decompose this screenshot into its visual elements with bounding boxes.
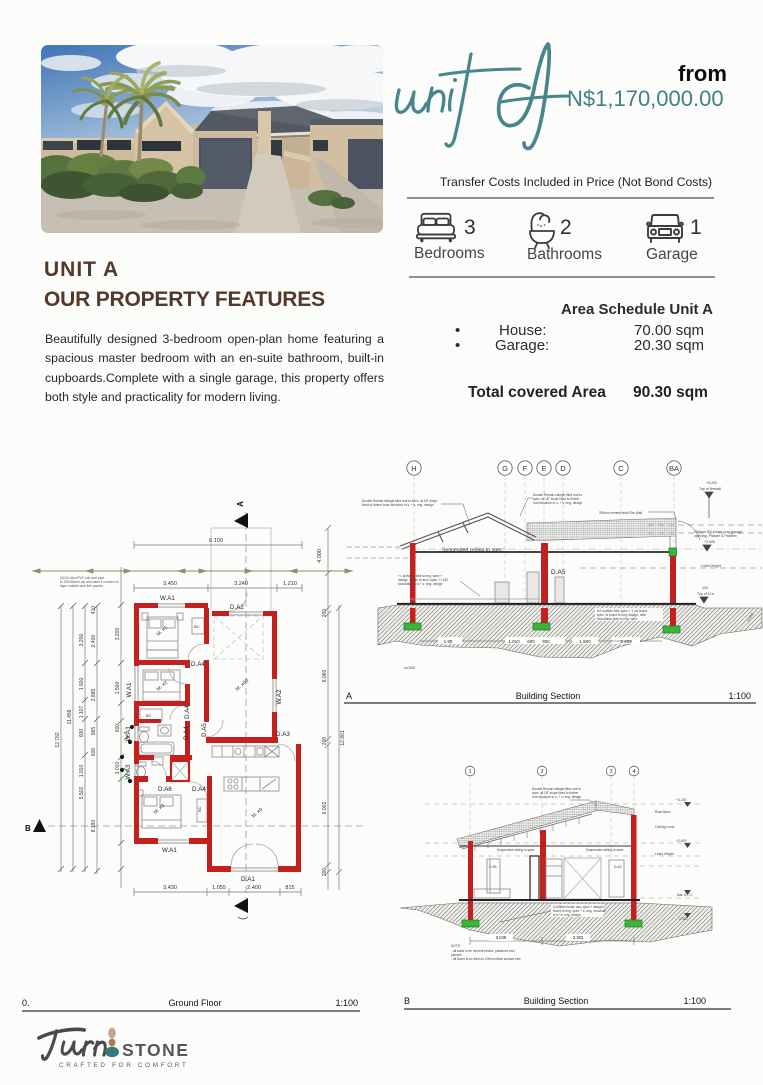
- svg-text:200: 200: [322, 609, 328, 618]
- svg-text:Suspended ceiling to spec:: Suspended ceiling to spec:: [442, 548, 504, 554]
- svg-text:E: E: [541, 464, 546, 473]
- svg-text:1: 1: [468, 769, 471, 775]
- svg-text:Nat. & f.f.l.: Nat. & f.f.l.: [677, 893, 693, 897]
- svg-text:1.800: 1.800: [579, 639, 591, 644]
- svg-text:D.A1: D.A1: [241, 876, 255, 883]
- svg-text:to s.+s. eng. design: to s.+s. eng. design: [553, 913, 581, 917]
- svg-text:3.200: 3.200: [79, 634, 85, 647]
- svg-text:2: 2: [540, 769, 543, 775]
- svg-text:A: A: [236, 501, 245, 507]
- svg-text:Suspended ceiling to spec:: Suspended ceiling to spec:: [497, 848, 535, 852]
- svg-text:M. ≠0: M. ≠0: [251, 807, 265, 820]
- svg-text:-2.302: -2.302: [678, 917, 688, 921]
- svg-text:M. ≠3: M. ≠3: [153, 803, 167, 816]
- svg-text:600: 600: [91, 748, 97, 757]
- svg-text:D.A3: D.A3: [276, 731, 290, 738]
- svg-text:B: B: [404, 996, 410, 1006]
- svg-text:W.A1: W.A1: [162, 847, 177, 854]
- svg-text:layer outside stub line panels: layer outside stub line panels: [60, 584, 103, 588]
- svg-text:BC: BC: [146, 713, 152, 718]
- svg-text:8.190: 8.190: [91, 820, 97, 833]
- svg-text:M. ≠1: M. ≠1: [156, 625, 170, 638]
- svg-text:B: B: [25, 824, 31, 833]
- svg-text:600: 600: [115, 724, 121, 733]
- svg-text:+2.600: +2.600: [676, 839, 687, 843]
- svg-text:BC: BC: [194, 624, 200, 629]
- svg-text:D.A4: D.A4: [183, 726, 190, 740]
- svg-text:600: 600: [527, 639, 535, 644]
- svg-text:12.782: 12.782: [55, 732, 61, 748]
- svg-text:D.A4: D.A4: [184, 705, 191, 719]
- svg-text:Building Section: Building Section: [524, 996, 589, 1006]
- svg-text:1.055: 1.055: [212, 885, 226, 891]
- svg-text:Building Section: Building Section: [516, 691, 581, 701]
- svg-text:Top of firewall: Top of firewall: [699, 487, 721, 491]
- svg-text:600: 600: [79, 729, 85, 738]
- svg-text:1.010: 1.010: [508, 639, 520, 644]
- svg-text:D.A2: D.A2: [614, 865, 622, 869]
- svg-text:11.459: 11.459: [67, 709, 73, 724]
- svg-text:fixed to timber truss structur: fixed to timber truss structure to s. + …: [362, 503, 434, 507]
- svg-text:12.861: 12.861: [340, 730, 346, 746]
- svg-text:1.010: 1.010: [79, 765, 85, 778]
- svg-text:BC: BC: [197, 806, 202, 812]
- svg-text:D.A2: D.A2: [230, 604, 244, 611]
- svg-text:D.A5: D.A5: [551, 569, 566, 576]
- svg-text:D.A5: D.A5: [201, 723, 208, 737]
- svg-text:roof structure to s. + s. eng.: roof structure to s. + s. eng. design: [533, 501, 582, 505]
- svg-text:6.060: 6.060: [322, 670, 328, 683]
- svg-text:W.A3: W.A3: [125, 764, 132, 779]
- svg-text:2.885: 2.885: [91, 689, 97, 702]
- svg-text:3.200: 3.200: [115, 628, 121, 641]
- svg-text:6.100: 6.100: [209, 538, 223, 544]
- svg-text:3.240: 3.240: [234, 581, 248, 587]
- svg-text:roof structure to s. + s. eng.: roof structure to s. + s. eng. design: [532, 795, 581, 799]
- svg-text:1:100: 1:100: [335, 998, 358, 1008]
- svg-text:4: 4: [632, 769, 635, 775]
- svg-text:2.400: 2.400: [620, 639, 632, 644]
- svg-text:Suspended ceiling to spec:: Suspended ceiling to spec:: [586, 848, 624, 852]
- svg-text:965: 965: [91, 727, 97, 736]
- svg-text:D.A6: D.A6: [158, 786, 172, 793]
- svg-text:H: H: [411, 464, 416, 473]
- svg-text:3: 3: [609, 769, 612, 775]
- svg-text:M. ≠00: M. ≠00: [235, 678, 251, 693]
- svg-text:Top of f.f.s.: Top of f.f.s.: [697, 592, 715, 596]
- svg-text:D.A4: D.A4: [191, 661, 205, 668]
- svg-text:0.: 0.: [22, 998, 30, 1008]
- svg-text:D: D: [560, 464, 566, 473]
- svg-text:3.353: 3.353: [573, 935, 584, 940]
- svg-text:G: G: [502, 464, 508, 473]
- svg-text:200: 200: [322, 737, 328, 746]
- svg-text:opening, Plaster & Painted: opening, Plaster & Painted: [694, 534, 737, 538]
- svg-text:+3.252: +3.252: [676, 798, 687, 802]
- svg-text:815: 815: [285, 885, 294, 891]
- svg-text:200mm cement brick Fire Wall: 200mm cement brick Fire Wall: [599, 511, 642, 515]
- svg-text:W.A1: W.A1: [160, 595, 175, 602]
- svg-text:2.400: 2.400: [91, 635, 97, 648]
- svg-text:- all floors to be tiled on 10: - all floors to be tiled on 100mm thick …: [451, 957, 521, 961]
- svg-text:1:100: 1:100: [683, 996, 706, 1006]
- svg-text:Ceiling Level: Ceiling Level: [655, 825, 675, 829]
- svg-text:Roof Apex: Roof Apex: [655, 810, 671, 814]
- svg-text:1.107: 1.107: [79, 706, 85, 719]
- svg-text:C.4B: C.4B: [489, 865, 497, 869]
- svg-text:1.90: 1.90: [444, 639, 453, 644]
- svg-text:F: F: [523, 464, 528, 473]
- svg-text:-100: -100: [701, 586, 708, 590]
- svg-text:Lintul Height: Lintul Height: [655, 852, 674, 856]
- svg-text:1.500: 1.500: [79, 678, 85, 691]
- svg-text:BA: BA: [669, 464, 679, 473]
- svg-text:1:100: 1:100: [728, 691, 751, 701]
- svg-text:W.A3: W.A3: [125, 726, 132, 741]
- svg-text:+2.600: +2.600: [704, 540, 715, 544]
- svg-text:D.A4: D.A4: [192, 786, 206, 793]
- svg-text:2.400: 2.400: [247, 885, 261, 891]
- svg-text:NOTE:: NOTE:: [451, 944, 461, 948]
- svg-text:4.000: 4.000: [317, 549, 323, 563]
- svg-text:3.450: 3.450: [163, 581, 177, 587]
- svg-text:Ground Floor: Ground Floor: [168, 998, 221, 1008]
- svg-text:STONE: STONE: [122, 1040, 189, 1060]
- svg-text:foundation plan to eng. spec: foundation plan to eng. spec: [597, 617, 637, 621]
- svg-text:foundation to s.+ s. eng. desi: foundation to s.+ s. eng. design: [398, 582, 443, 586]
- svg-text:3.048: 3.048: [496, 935, 507, 940]
- svg-text:W.A1: W.A1: [126, 682, 133, 697]
- svg-text:1.500: 1.500: [115, 682, 121, 695]
- svg-text:+5.252: +5.252: [706, 481, 717, 485]
- svg-text:M. ≠2: M. ≠2: [156, 680, 170, 693]
- svg-text:CRAFTED FOR COMFORT: CRAFTED FOR COMFORT: [59, 1062, 189, 1069]
- svg-text:6.001: 6.001: [322, 802, 328, 815]
- svg-text:1.010: 1.010: [115, 762, 121, 775]
- svg-text:5.502: 5.502: [79, 787, 85, 800]
- svg-text:900: 900: [542, 639, 550, 644]
- svg-text:W.A2: W.A2: [276, 689, 283, 704]
- svg-text:su/1150: su/1150: [404, 666, 415, 670]
- svg-text:A: A: [346, 691, 352, 701]
- svg-text:3.430: 3.430: [163, 885, 177, 891]
- svg-text:Lintul Height: Lintul Height: [701, 564, 721, 568]
- svg-text:1.210: 1.210: [283, 581, 297, 587]
- svg-text:C: C: [618, 464, 624, 473]
- svg-text:200: 200: [322, 868, 328, 877]
